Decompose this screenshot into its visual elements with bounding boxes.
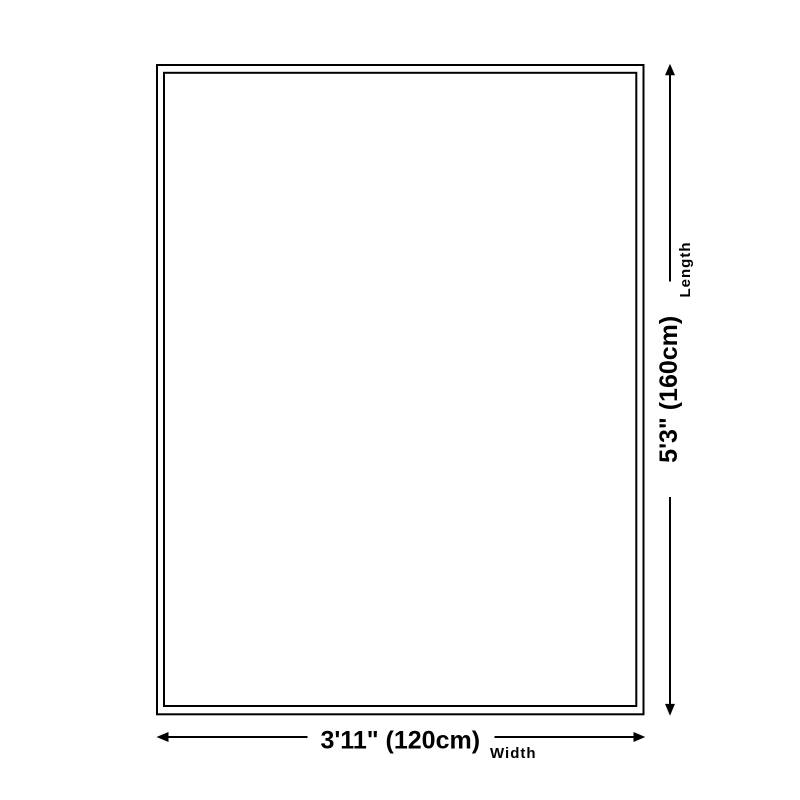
svg-text:5'3" (160cm): 5'3" (160cm) bbox=[655, 316, 683, 463]
svg-text:3'11" (120cm): 3'11" (120cm) bbox=[320, 726, 480, 754]
svg-text:Length: Length bbox=[677, 242, 694, 298]
svg-text:Width: Width bbox=[490, 745, 537, 762]
